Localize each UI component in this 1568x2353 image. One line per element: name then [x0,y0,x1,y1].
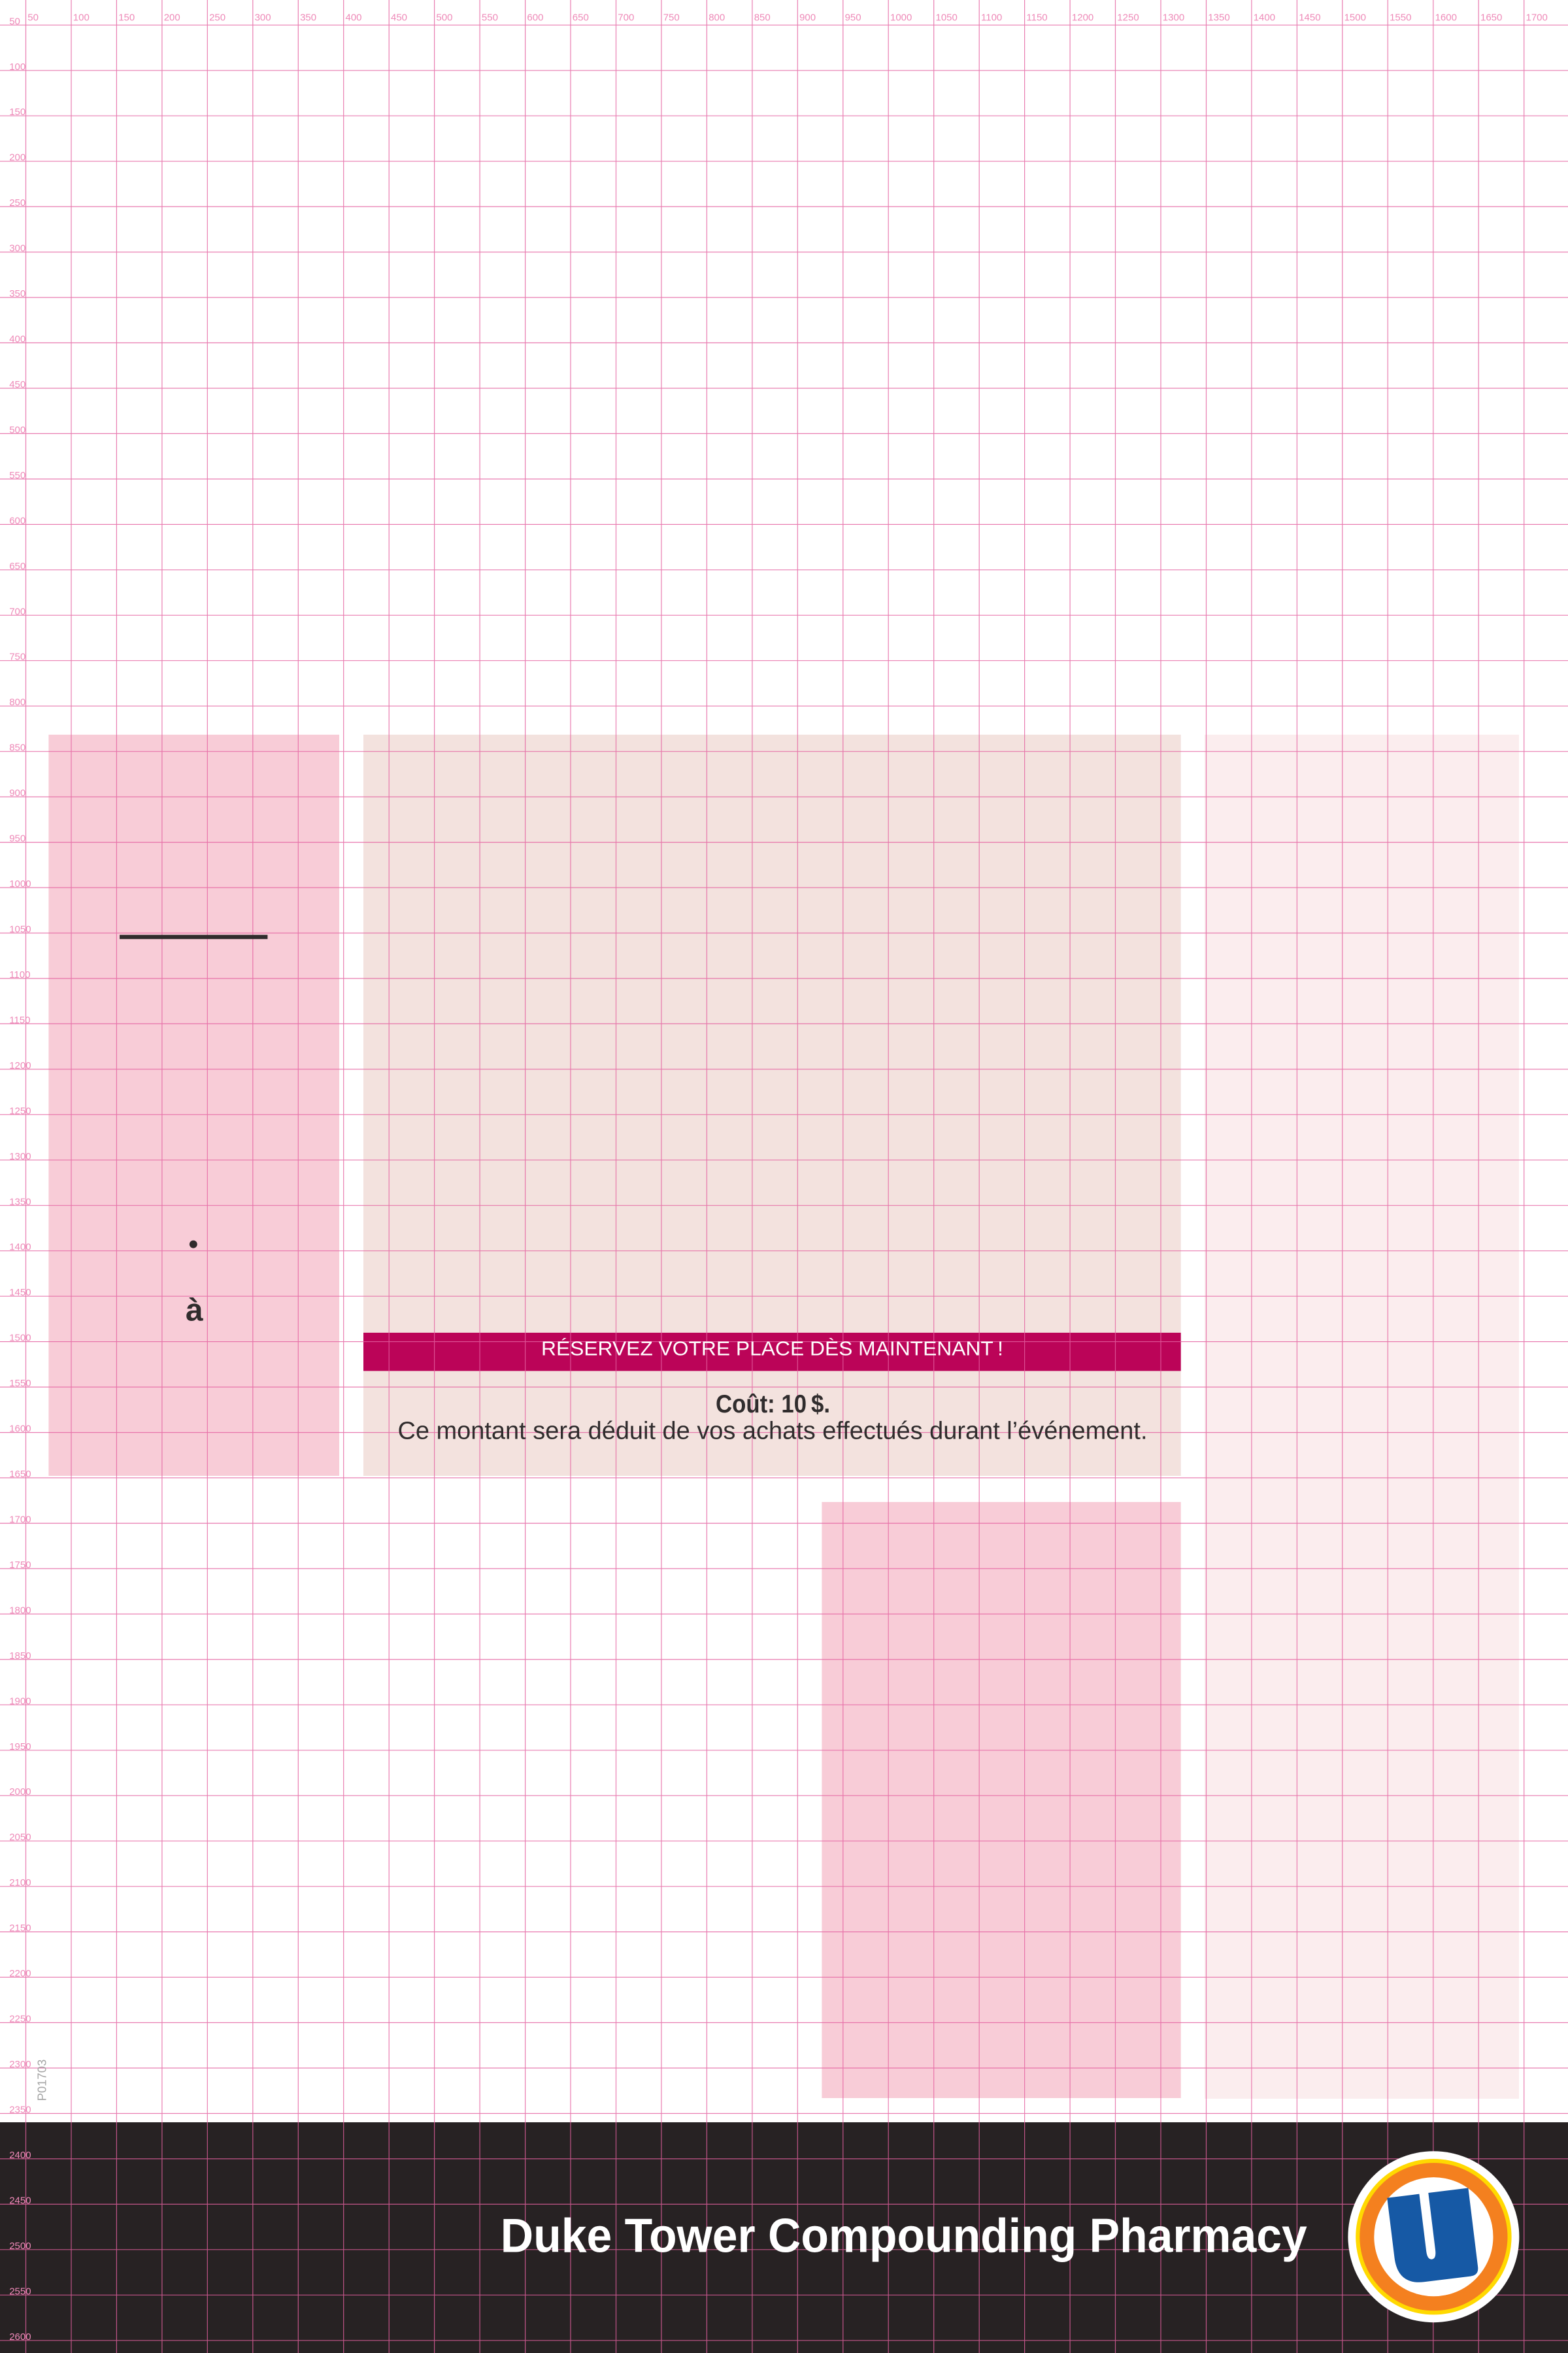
svg-text:750: 750 [9,652,25,663]
svg-text:200: 200 [9,152,25,163]
svg-text:1350: 1350 [1208,12,1229,24]
svg-text:450: 450 [9,379,25,390]
svg-text:1650: 1650 [1480,12,1502,24]
svg-text:250: 250 [209,12,225,24]
svg-text:Coût: 10 $.: Coût: 10 $. [716,1390,830,1418]
svg-text:650: 650 [9,561,25,572]
svg-text:1200: 1200 [1072,12,1093,24]
svg-text:600: 600 [527,12,543,24]
svg-text:2400: 2400 [9,2150,31,2161]
svg-text:1850: 1850 [9,1650,31,1661]
svg-text:1700: 1700 [1526,12,1548,24]
svg-text:RÉSERVEZ VOTRE PLACE DÈS MAINT: RÉSERVEZ VOTRE PLACE DÈS MAINTENANT ! [541,1337,1003,1360]
svg-text:400: 400 [9,334,25,345]
svg-text:1300: 1300 [9,1151,31,1162]
svg-text:300: 300 [255,12,271,24]
svg-text:950: 950 [9,833,25,844]
svg-text:1550: 1550 [9,1378,31,1389]
svg-text:50: 50 [27,12,39,24]
svg-text:200: 200 [164,12,180,24]
svg-text:600: 600 [9,515,25,526]
svg-text:Ce montant sera déduit de vos: Ce montant sera déduit de vos achats eff… [398,1418,1148,1445]
svg-text:1750: 1750 [9,1560,31,1571]
svg-text:1250: 1250 [9,1105,31,1116]
svg-text:1050: 1050 [936,12,958,24]
svg-text:1650: 1650 [9,1469,31,1480]
svg-text:1000: 1000 [9,878,31,890]
svg-text:1600: 1600 [9,1424,31,1435]
svg-text:100: 100 [9,61,25,73]
svg-text:1550: 1550 [1390,12,1411,24]
svg-text:700: 700 [618,12,634,24]
svg-text:500: 500 [436,12,452,24]
svg-text:2500: 2500 [9,2241,31,2252]
svg-text:1250: 1250 [1117,12,1139,24]
svg-text:1500: 1500 [9,1333,31,1344]
svg-text:550: 550 [9,470,25,481]
svg-text:450: 450 [391,12,407,24]
svg-text:2550: 2550 [9,2286,31,2297]
svg-text:750: 750 [663,12,680,24]
svg-text:1600: 1600 [1435,12,1457,24]
svg-text:2200: 2200 [9,1968,31,1979]
svg-text:1700: 1700 [9,1514,31,1526]
svg-text:1450: 1450 [1299,12,1320,24]
svg-text:1100: 1100 [981,12,1002,24]
svg-text:700: 700 [9,606,25,617]
svg-text:650: 650 [573,12,589,24]
svg-text:950: 950 [845,12,861,24]
svg-text:850: 850 [754,12,771,24]
svg-text:1400: 1400 [9,1242,31,1253]
svg-text:1500: 1500 [1344,12,1366,24]
svg-text:1150: 1150 [9,1014,30,1026]
svg-text:P01703: P01703 [35,2060,49,2101]
svg-text:50: 50 [9,16,20,27]
svg-text:2250: 2250 [9,2014,31,2025]
svg-text:100: 100 [73,12,90,24]
svg-text:1950: 1950 [9,1741,31,1752]
svg-text:2450: 2450 [9,2195,31,2206]
svg-text:250: 250 [9,197,25,209]
svg-text:500: 500 [9,424,25,435]
svg-text:2150: 2150 [9,1923,31,1934]
svg-text:1050: 1050 [9,924,31,935]
svg-text:800: 800 [9,697,25,708]
svg-text:400: 400 [346,12,362,24]
svg-text:Duke Tower Compounding Pharmac: Duke Tower Compounding Pharmacy [501,2210,1307,2263]
svg-text:2600: 2600 [9,2331,31,2343]
svg-text:2000: 2000 [9,1786,31,1797]
svg-text:850: 850 [9,743,25,754]
svg-text:1900: 1900 [9,1695,31,1707]
svg-text:1350: 1350 [9,1196,31,1207]
svg-text:150: 150 [118,12,135,24]
svg-text:800: 800 [709,12,725,24]
svg-text:350: 350 [9,288,25,299]
svg-text:2050: 2050 [9,1832,31,1843]
svg-text:350: 350 [300,12,316,24]
svg-text:à: à [186,1293,203,1328]
svg-text:1150: 1150 [1026,12,1047,24]
svg-text:1100: 1100 [9,969,30,980]
svg-text:1000: 1000 [890,12,912,24]
svg-text:1450: 1450 [9,1287,31,1298]
svg-text:1400: 1400 [1254,12,1275,24]
svg-text:1800: 1800 [9,1605,31,1616]
svg-text:2350: 2350 [9,2105,31,2116]
svg-text:2300: 2300 [9,2059,31,2070]
svg-text:900: 900 [799,12,816,24]
svg-text:2100: 2100 [9,1877,31,1888]
svg-text:1300: 1300 [1163,12,1184,24]
svg-text:550: 550 [482,12,498,24]
svg-text:900: 900 [9,788,25,799]
svg-text:300: 300 [9,243,25,254]
svg-text:150: 150 [9,107,25,118]
svg-text:1200: 1200 [9,1060,31,1071]
